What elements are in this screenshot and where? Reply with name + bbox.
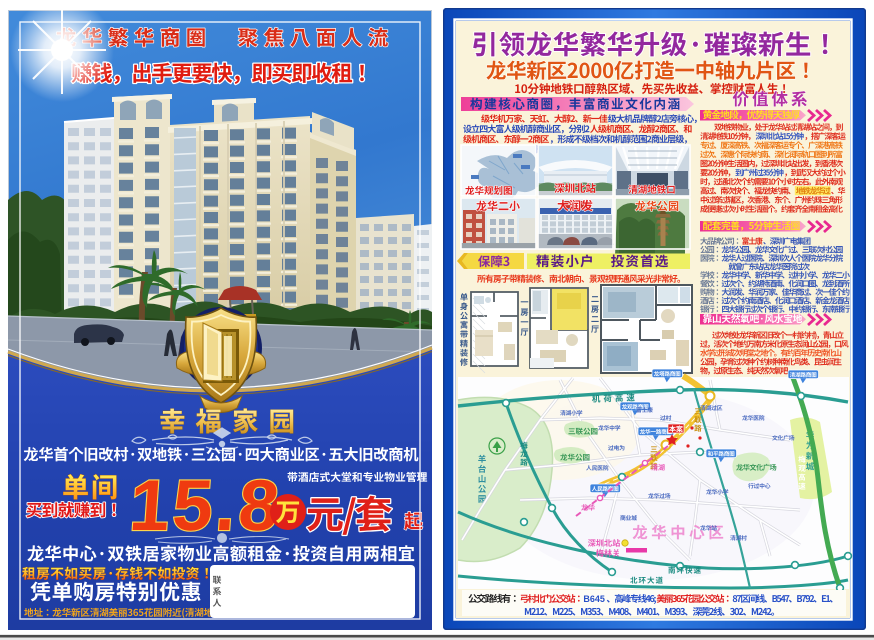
svg-text:B645: B645: [583, 594, 605, 604]
svg-text:15.8: 15.8: [127, 466, 285, 546]
